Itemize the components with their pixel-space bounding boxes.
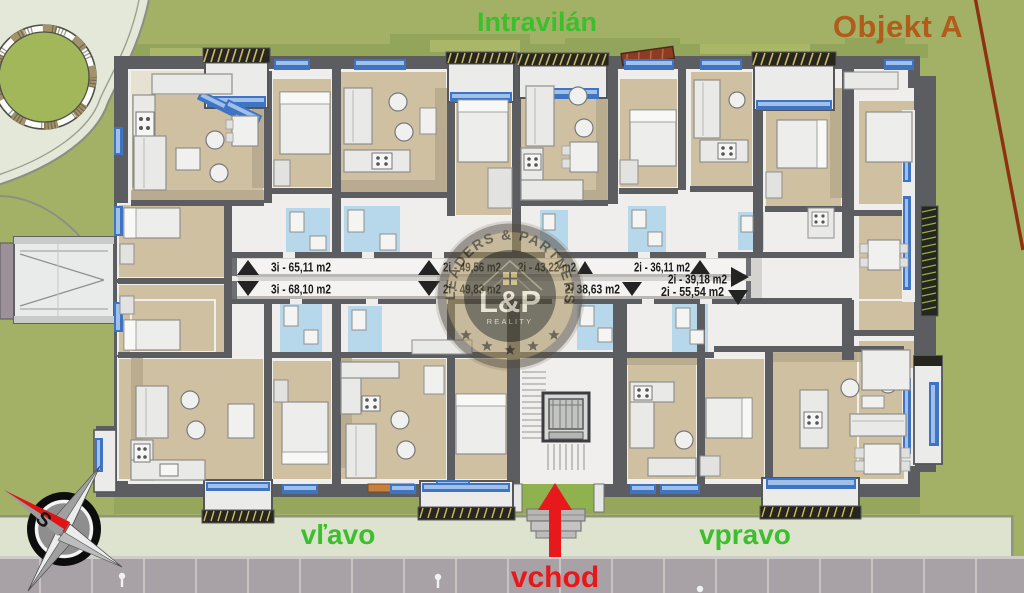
svg-text:vchod: vchod (511, 561, 599, 593)
svg-text:vpravo: vpravo (699, 519, 791, 550)
svg-text:vľavo: vľavo (301, 519, 376, 550)
svg-text:3i - 65,11 m2: 3i - 65,11 m2 (271, 261, 331, 275)
svg-text:Objekt A: Objekt A (833, 9, 963, 44)
svg-text:3i - 68,10 m2: 3i - 68,10 m2 (271, 283, 331, 297)
svg-text:2i - 55,54 m2: 2i - 55,54 m2 (661, 285, 724, 299)
svg-text:REALITY: REALITY (487, 317, 534, 326)
svg-text:L&P: L&P (479, 284, 541, 319)
svg-text:Intravilán: Intravilán (477, 7, 597, 37)
